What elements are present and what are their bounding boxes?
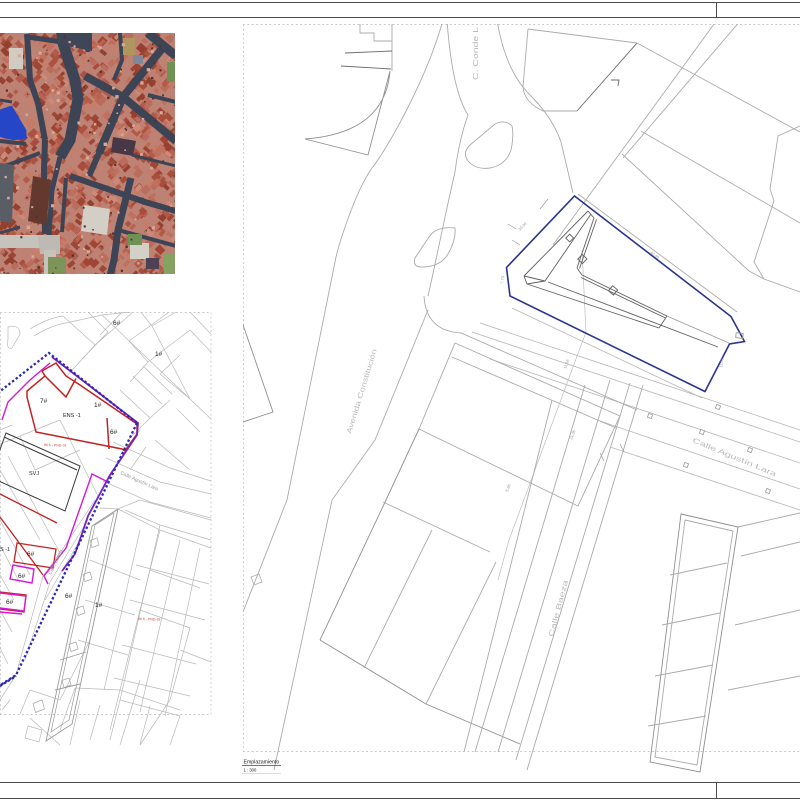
svg-text:C. Conde L: C. Conde L (473, 27, 480, 80)
svg-text:1#: 1# (155, 351, 163, 358)
svg-text:7#: 7# (40, 398, 48, 405)
svg-text:86.6 - PND-78: 86.6 - PND-78 (44, 443, 67, 448)
svg-text:86.6 - PND-78: 86.6 - PND-78 (138, 617, 161, 622)
svg-text:6#: 6# (18, 573, 26, 580)
svg-text:6#: 6# (6, 599, 14, 606)
svg-text:1#: 1# (94, 402, 102, 409)
svg-text:S -1: S -1 (0, 547, 10, 553)
svg-text:ENS -1: ENS -1 (63, 413, 81, 419)
svg-text:SVJ: SVJ (29, 471, 39, 477)
svg-text:Emplazamiento: Emplazamiento (244, 760, 280, 766)
svg-text:6#: 6# (65, 593, 73, 600)
svg-text:1#: 1# (95, 602, 103, 609)
svg-text:6#: 6# (27, 551, 35, 558)
svg-text:6#: 6# (110, 429, 118, 436)
svg-text:6#: 6# (113, 320, 121, 327)
svg-text:1 : 300: 1 : 300 (244, 768, 257, 773)
